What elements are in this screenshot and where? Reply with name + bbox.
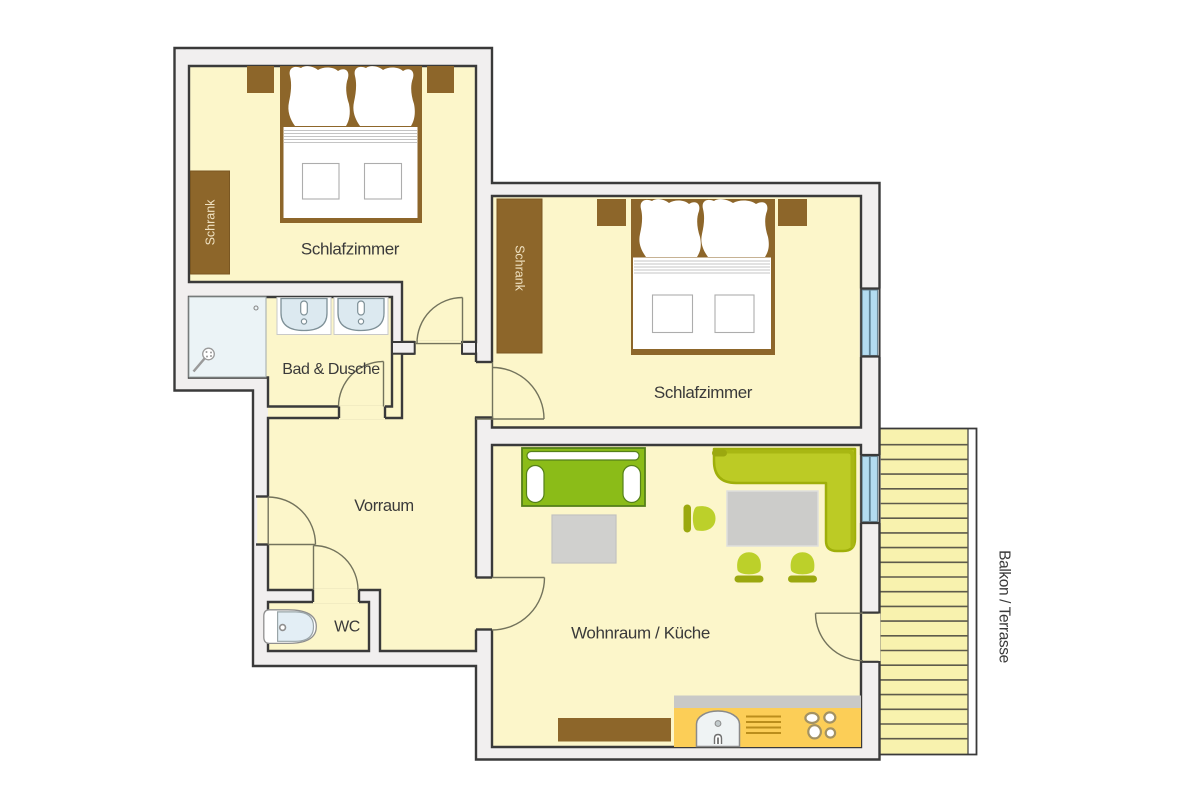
svg-text:Vorraum: Vorraum (354, 497, 414, 515)
svg-text:Schlafzimmer: Schlafzimmer (654, 383, 753, 402)
svg-text:Schrank: Schrank (513, 245, 527, 292)
svg-text:Balkon / Terrasse: Balkon / Terrasse (996, 550, 1013, 663)
svg-text:Bad & Dusche: Bad & Dusche (282, 361, 380, 378)
svg-text:Wohnraum / Küche: Wohnraum / Küche (571, 624, 710, 643)
svg-text:Schrank: Schrank (204, 199, 218, 246)
svg-text:Schlafzimmer: Schlafzimmer (301, 240, 400, 259)
svg-text:WC: WC (334, 619, 360, 636)
